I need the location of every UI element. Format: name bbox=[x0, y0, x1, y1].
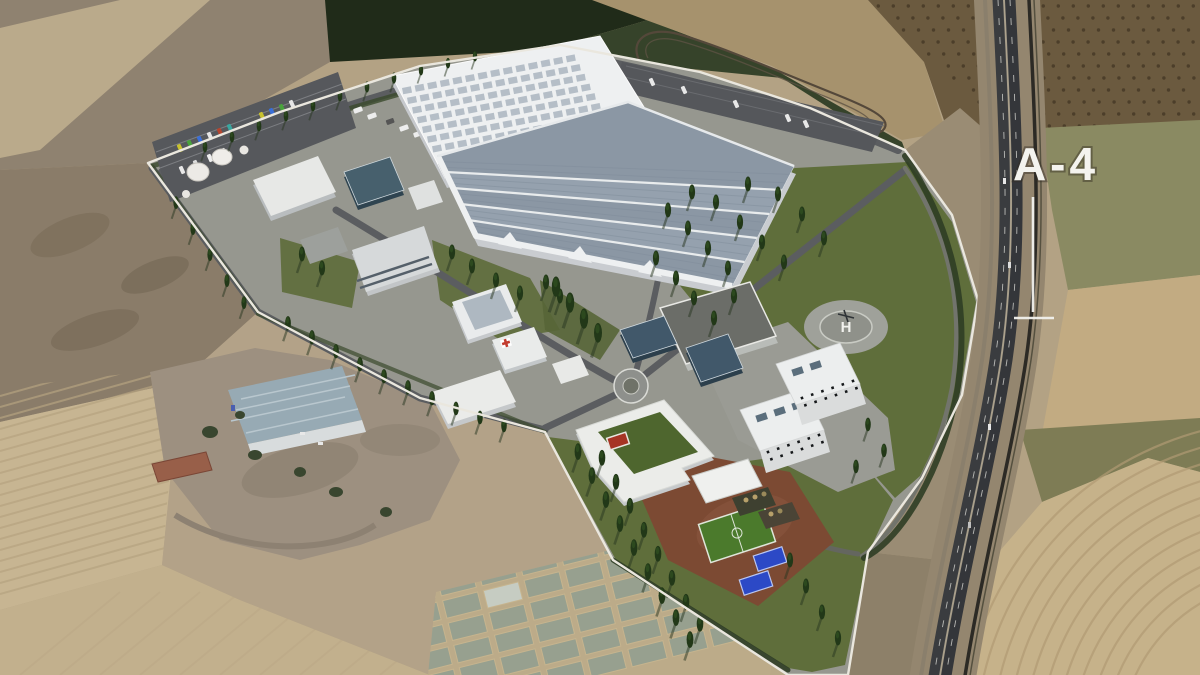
roundabout bbox=[614, 369, 648, 403]
helipad-letter: H bbox=[841, 319, 852, 336]
vehicle bbox=[318, 442, 323, 445]
vehicle bbox=[300, 432, 305, 435]
aerial-render: H bbox=[0, 0, 1200, 675]
yard-blotch bbox=[360, 424, 440, 456]
helipad: H bbox=[804, 300, 888, 354]
aerial-render-canvas: H bbox=[0, 0, 1200, 675]
vehicle bbox=[231, 405, 235, 411]
highway-label: A-4 bbox=[1013, 138, 1099, 190]
